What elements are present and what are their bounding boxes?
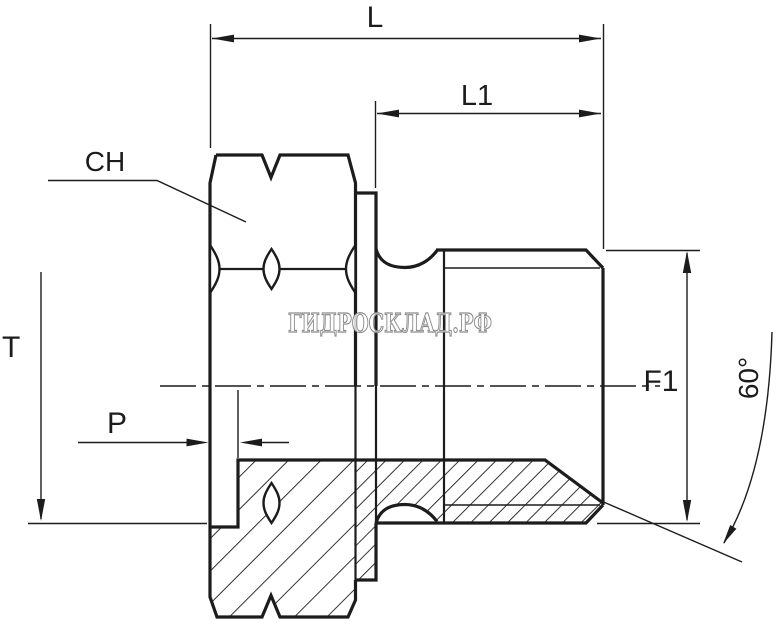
label-overall-length: L	[367, 1, 384, 34]
dimension-cone-angle: 60°	[599, 332, 772, 562]
technical-drawing-page: L L1 CH T P F1	[0, 0, 783, 629]
label-recess-depth: P	[107, 407, 127, 440]
label-port-thread: T	[2, 331, 20, 364]
callout-port-thread: T	[2, 272, 207, 524]
section-hatching-nut	[211, 460, 356, 617]
label-hex-size: CH	[85, 146, 125, 177]
dimension-thread-length: L1	[376, 80, 602, 188]
dimension-thread-size: F1	[597, 251, 700, 524]
watermark-text: ГИДРОСКЛАД.РФ	[288, 309, 492, 339]
label-thread-size: F1	[643, 365, 678, 398]
dimension-overall-length: L	[211, 1, 604, 249]
fitting-drawing: L L1 CH T P F1	[0, 0, 783, 629]
label-cone-angle: 60°	[733, 357, 764, 399]
dimension-recess-depth: P	[78, 390, 289, 458]
section-hatching-body	[356, 460, 604, 580]
label-thread-length: L1	[461, 80, 493, 112]
